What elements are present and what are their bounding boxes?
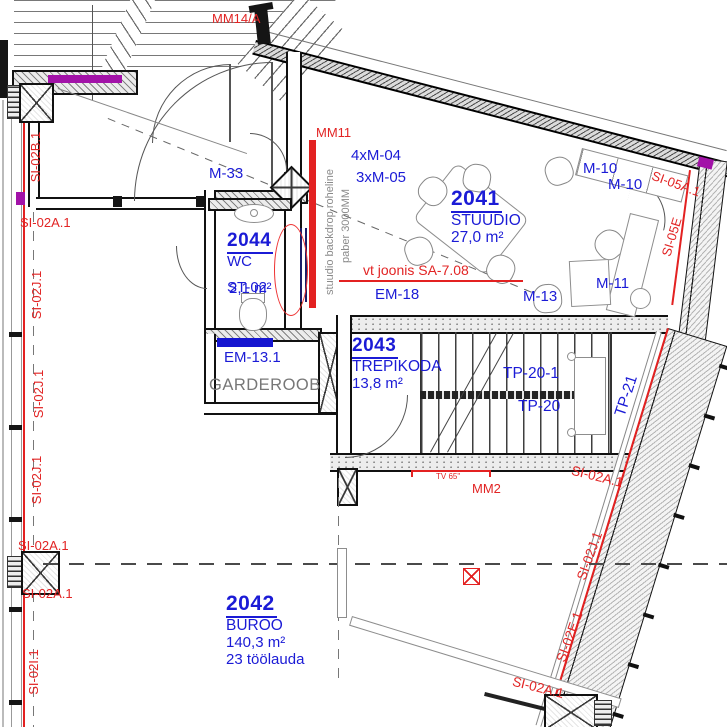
- rail-post: [567, 428, 576, 437]
- room-2044-code-overlap: ST-02: [227, 280, 267, 296]
- door-arc-entry-small: [152, 64, 231, 143]
- sink-drain: [250, 209, 258, 217]
- marker-red-square: [463, 568, 480, 585]
- label-m13: M-13: [523, 289, 557, 305]
- room-garderoob: GARDEROOB: [209, 377, 321, 394]
- annotation-si02j1: SI-02J.1: [30, 271, 44, 319]
- note-backdrop-line1: stuudio backdrop roheline: [325, 169, 337, 295]
- label-tp201: TP-20-1: [503, 366, 559, 382]
- desk-row-vertical: [337, 548, 347, 618]
- facade-outer-line: [2, 100, 4, 727]
- room-2041-number: 2041: [451, 188, 502, 213]
- stair-rail: [420, 391, 598, 399]
- window-tick: [9, 607, 22, 612]
- annotation-si02i1: SI-02I.1: [27, 649, 41, 695]
- annotation-mm11: MM11: [316, 126, 351, 140]
- wall-entry-vertical: [286, 52, 302, 174]
- door-leaf: [271, 62, 273, 200]
- room-2041-name: STUUDIO: [451, 212, 521, 229]
- toilet: [239, 298, 267, 331]
- note-backdrop-line2: paber 3000MM: [341, 189, 353, 263]
- floor-plan-canvas: MM14/A MM11 vt joonis SA-7.08 SI-05E SI-…: [0, 0, 727, 727]
- column-under-stairs: [337, 468, 358, 506]
- column-topleft: [19, 83, 54, 123]
- facade-tick: [643, 612, 655, 619]
- room-2044-number: 2044: [227, 231, 273, 254]
- room-2042: 2042 BÜROO 140,3 m² 23 töölauda: [226, 593, 304, 668]
- wall-post: [113, 196, 122, 207]
- wall-garderoob-left: [204, 334, 216, 410]
- label-m05: 3xM-05: [356, 170, 406, 186]
- label-m04: 4xM-04: [351, 148, 401, 164]
- annotation-tv: TV 65": [436, 473, 460, 481]
- room-2042-number: 2042: [226, 593, 277, 618]
- window-band-left: [11, 88, 22, 727]
- annotation-si02a1-left: SI-02A.1: [18, 539, 69, 553]
- room-2041: 2041 STUUDIO 27,0 m²: [451, 188, 521, 247]
- stair-landing-rail: [574, 357, 606, 435]
- label-m33: M-33: [209, 166, 243, 182]
- label-m11: M-11: [596, 276, 629, 292]
- annotation-vt-joonis: vt joonis SA-7.08: [363, 263, 469, 278]
- annotation-si02a1-left: SI-02A.1: [22, 587, 73, 601]
- annotation-si02j1: SI-02J.1: [32, 370, 46, 418]
- door-leaf: [229, 64, 231, 142]
- annotation-si02a1-left: SI-02A.1: [20, 216, 71, 230]
- centerline-horizontal: [43, 563, 727, 565]
- room-2041-area: 27,0 m²: [451, 229, 504, 246]
- annotation-si02j1: SI-02J.1: [30, 456, 44, 504]
- room-2043-number: 2043: [352, 336, 398, 359]
- tv-bracket-tick: [489, 470, 491, 477]
- highlight-ellipse-red: [274, 224, 308, 316]
- window-tick: [9, 517, 22, 522]
- label-m10-upper: M-10: [583, 161, 617, 177]
- facade-tick: [703, 413, 715, 420]
- door-arc-stairs: [345, 395, 408, 458]
- label-m10-lower: M-10: [608, 177, 642, 193]
- wall-top-sloped: [252, 40, 727, 178]
- magenta-strip-topleft: [48, 75, 122, 83]
- room-2043-name: TREPIKODA: [352, 358, 442, 375]
- window-tick: [9, 700, 22, 705]
- rail-post: [567, 352, 576, 361]
- window-tick: [9, 332, 22, 337]
- backdrop-line-red: [309, 140, 316, 308]
- hatch-stub: [594, 700, 612, 726]
- stair-separator: [610, 332, 612, 453]
- vt-joonis-underline: [339, 280, 523, 282]
- annotation-mm14: MM14/A: [212, 12, 260, 26]
- door-arc-m33: [250, 133, 287, 170]
- facade-tick: [719, 364, 727, 371]
- annotation-mm2: MM2: [472, 482, 501, 496]
- room-2042-area: 140,3 m²: [226, 634, 285, 651]
- annotation-si02b1: SI-02B.1: [29, 132, 43, 183]
- room-2042-desks: 23 töölauda: [226, 651, 304, 668]
- tv-bracket-tick: [411, 470, 413, 477]
- room-2044-name: WC: [227, 253, 252, 270]
- room-2043-area: 13,8 m²: [352, 375, 403, 392]
- chair: [541, 153, 577, 189]
- window-tick: [9, 425, 22, 430]
- shelf-bar-blue: [217, 338, 273, 347]
- facade-tick: [627, 662, 639, 669]
- label-em18: EM-18: [375, 287, 419, 303]
- room-2044: 2044 WC: [227, 231, 273, 271]
- facade-tick: [612, 712, 624, 719]
- magenta-block-left: [16, 192, 25, 205]
- stool: [630, 288, 651, 309]
- facade-tick: [673, 513, 685, 520]
- label-em131: EM-13.1: [224, 350, 281, 366]
- facade-tick: [688, 463, 700, 470]
- room-2042-name: BÜROO: [226, 617, 283, 634]
- label-tp20: TP-20: [518, 399, 560, 415]
- door-arc-wc: [176, 246, 207, 289]
- room-2043: 2043 TREPIKODA 13,8 m²: [352, 336, 442, 393]
